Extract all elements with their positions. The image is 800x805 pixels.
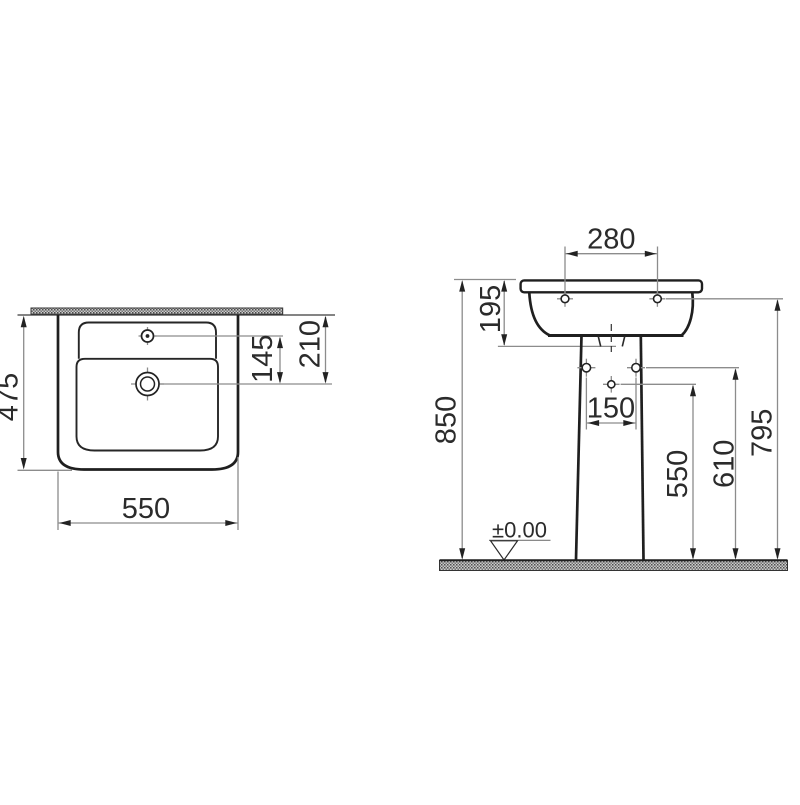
svg-text:150: 150 [587,393,635,425]
svg-text:195: 195 [475,285,507,333]
svg-text:610: 610 [709,440,741,488]
svg-text:795: 795 [747,409,779,457]
svg-text:145: 145 [247,335,279,383]
svg-text:550: 550 [662,450,694,498]
svg-text:550: 550 [122,493,170,525]
svg-text:850: 850 [430,396,462,444]
svg-text:475: 475 [0,373,24,421]
svg-text:±0.00: ±0.00 [492,518,547,543]
svg-text:280: 280 [587,224,635,256]
svg-text:210: 210 [295,320,327,368]
